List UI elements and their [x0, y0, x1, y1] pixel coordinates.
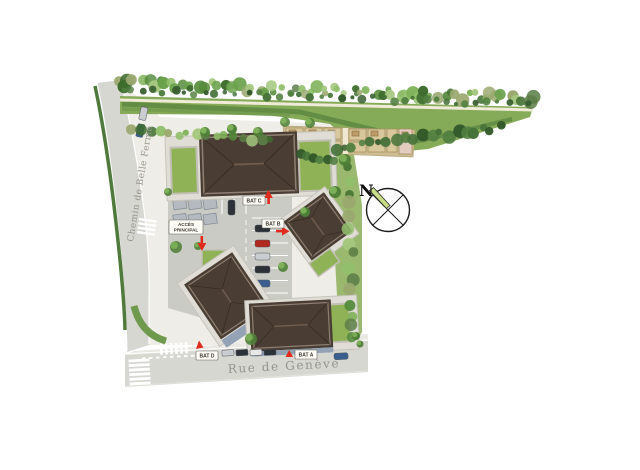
bat-b-label: BAT B — [266, 221, 281, 227]
site-plan-page: N ACCÈS PRINCIPAL BAT C BAT B BAT D BAT — [0, 0, 640, 470]
bat-d-tag: BAT D — [196, 351, 218, 360]
access-line1: ACCÈS — [178, 220, 194, 227]
access-line2: PRINCIPAL — [174, 228, 199, 233]
bat-c-label: BAT C — [247, 198, 262, 204]
compass-north-label: N — [359, 181, 374, 200]
bat-c-tag: BAT C — [243, 196, 265, 205]
bat-d-label: BAT D — [200, 353, 215, 359]
bat-b-tag: BAT B — [262, 219, 284, 228]
masterplan-illustration: N ACCÈS PRINCIPAL BAT C BAT B BAT D BAT — [0, 0, 640, 470]
access-tag: ACCÈS PRINCIPAL — [169, 220, 203, 234]
building-a — [245, 295, 360, 357]
compass-rose: N — [359, 181, 410, 232]
